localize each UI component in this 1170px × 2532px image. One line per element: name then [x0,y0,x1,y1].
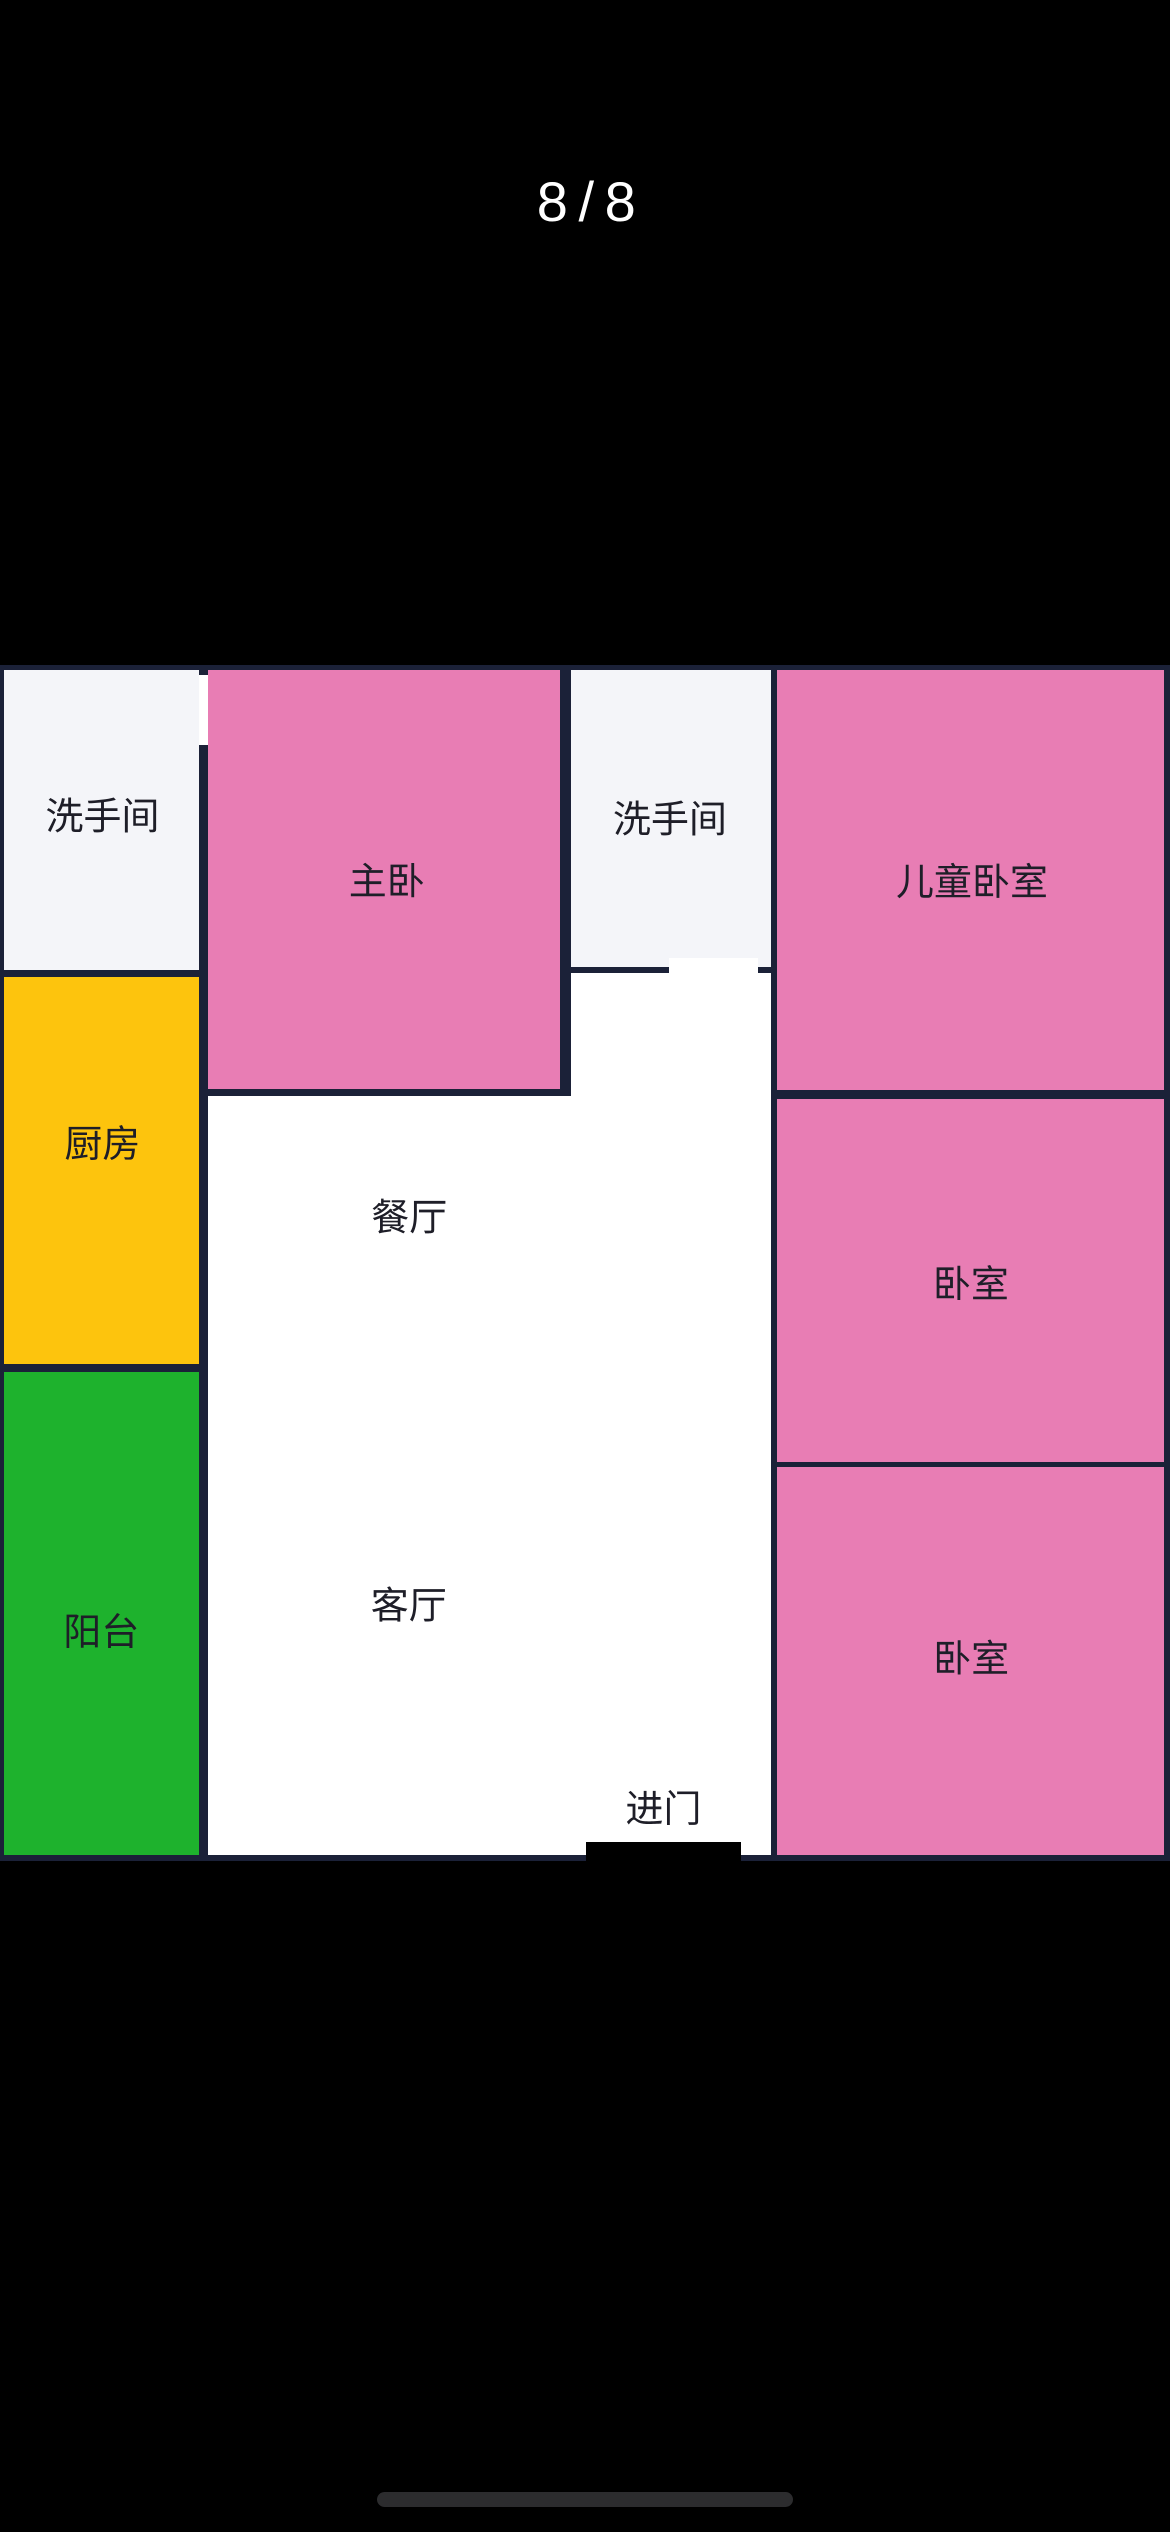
svg-text:8 / 8: 8 / 8 [537,170,634,233]
